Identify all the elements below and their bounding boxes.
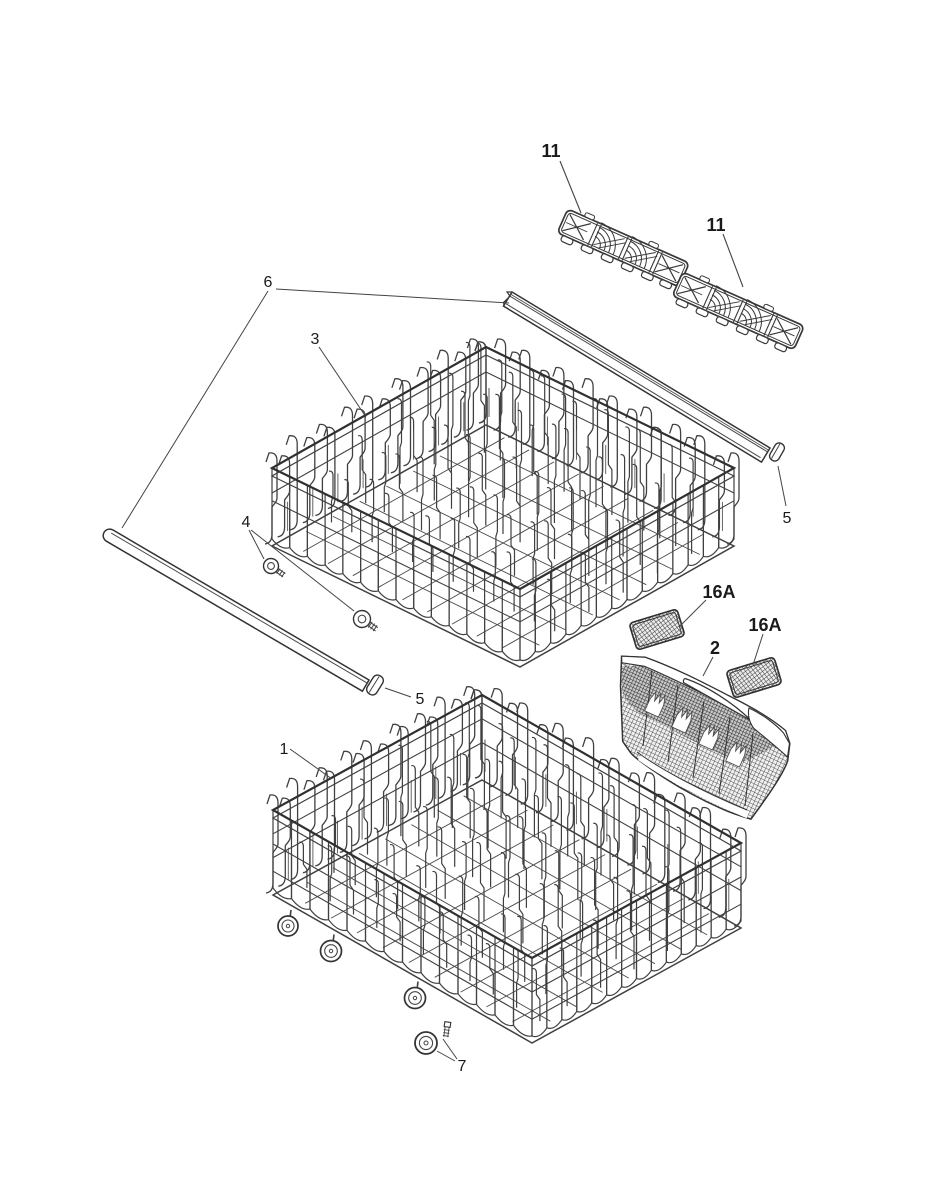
svg-text:4: 4 bbox=[242, 514, 251, 531]
svg-text:11: 11 bbox=[541, 141, 560, 161]
svg-text:7: 7 bbox=[458, 1058, 467, 1075]
svg-text:3: 3 bbox=[311, 331, 320, 348]
svg-text:6: 6 bbox=[264, 274, 273, 291]
svg-text:5: 5 bbox=[783, 510, 792, 527]
svg-text:5: 5 bbox=[416, 691, 425, 708]
svg-text:11: 11 bbox=[706, 215, 725, 235]
svg-text:16A: 16A bbox=[748, 615, 781, 635]
svg-text:2: 2 bbox=[710, 638, 720, 658]
svg-text:16A: 16A bbox=[702, 582, 735, 602]
svg-text:1: 1 bbox=[280, 741, 289, 758]
